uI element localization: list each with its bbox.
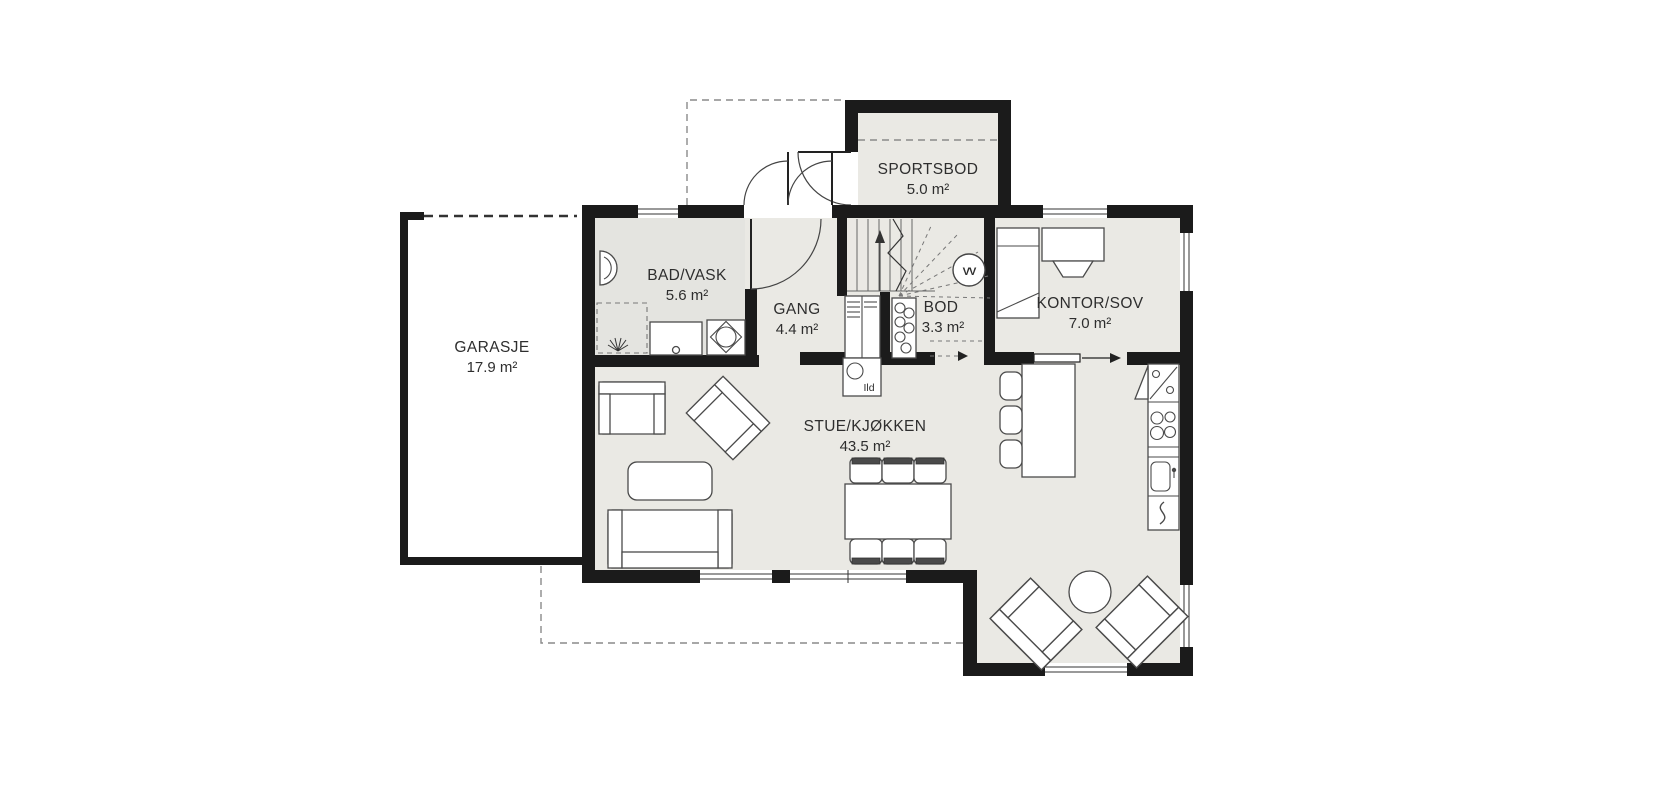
- sofa: [608, 510, 732, 568]
- water-heater-label: VV: [963, 266, 977, 278]
- bod-shelf: [892, 298, 916, 358]
- sportsbod-door: [798, 152, 851, 205]
- room-sportsbod-area: 5.0 m²: [907, 181, 950, 198]
- room-bad-label: BAD/VASK: [647, 267, 727, 284]
- room-kontor-label: KONTOR/SOV: [1036, 295, 1143, 312]
- room-stue-area: 43.5 m²: [840, 438, 891, 455]
- entrance-door: [744, 152, 832, 218]
- room-gang-label: GANG: [773, 301, 820, 318]
- room-bod-label: BOD: [924, 299, 959, 316]
- floor-plan-svg: VV Ild: [0, 0, 1670, 800]
- window-kontor-right: [1180, 233, 1193, 291]
- fireplace: Ild: [843, 358, 881, 396]
- water-heater: VV: [953, 254, 985, 286]
- fireplace-label: Ild: [863, 382, 874, 394]
- room-bod-area: 3.3 m²: [922, 319, 965, 336]
- room-kontor-area: 7.0 m²: [1069, 315, 1112, 332]
- room-sportsbod-label: SPORTSBOD: [878, 161, 979, 178]
- window-stue-b: [790, 570, 906, 583]
- floor-plan-canvas: VV Ild: [0, 0, 1670, 800]
- coffee-table: [628, 462, 712, 500]
- garage: [400, 212, 582, 565]
- room-garasje-label: GARASJE: [454, 339, 529, 356]
- bar-stools: [1000, 372, 1022, 468]
- armchair-1: [599, 382, 665, 434]
- toilet: [707, 320, 745, 355]
- window-bad: [638, 205, 678, 218]
- room-stue-label: STUE/KJØKKEN: [804, 418, 927, 435]
- room-gang-area: 4.4 m²: [776, 321, 819, 338]
- window-stue-a: [700, 570, 772, 583]
- room-garasje-area: 17.9 m²: [467, 359, 518, 376]
- bed: [997, 228, 1039, 318]
- dining-table: [845, 484, 951, 539]
- wardrobe: [845, 296, 880, 358]
- washing-machine: [650, 322, 702, 355]
- window-kontor-top: [1043, 205, 1107, 218]
- window-nook-bottom: [1045, 663, 1127, 676]
- kitchen-island: [1022, 364, 1075, 477]
- round-table: [1069, 571, 1111, 613]
- room-bad-area: 5.6 m²: [666, 287, 709, 304]
